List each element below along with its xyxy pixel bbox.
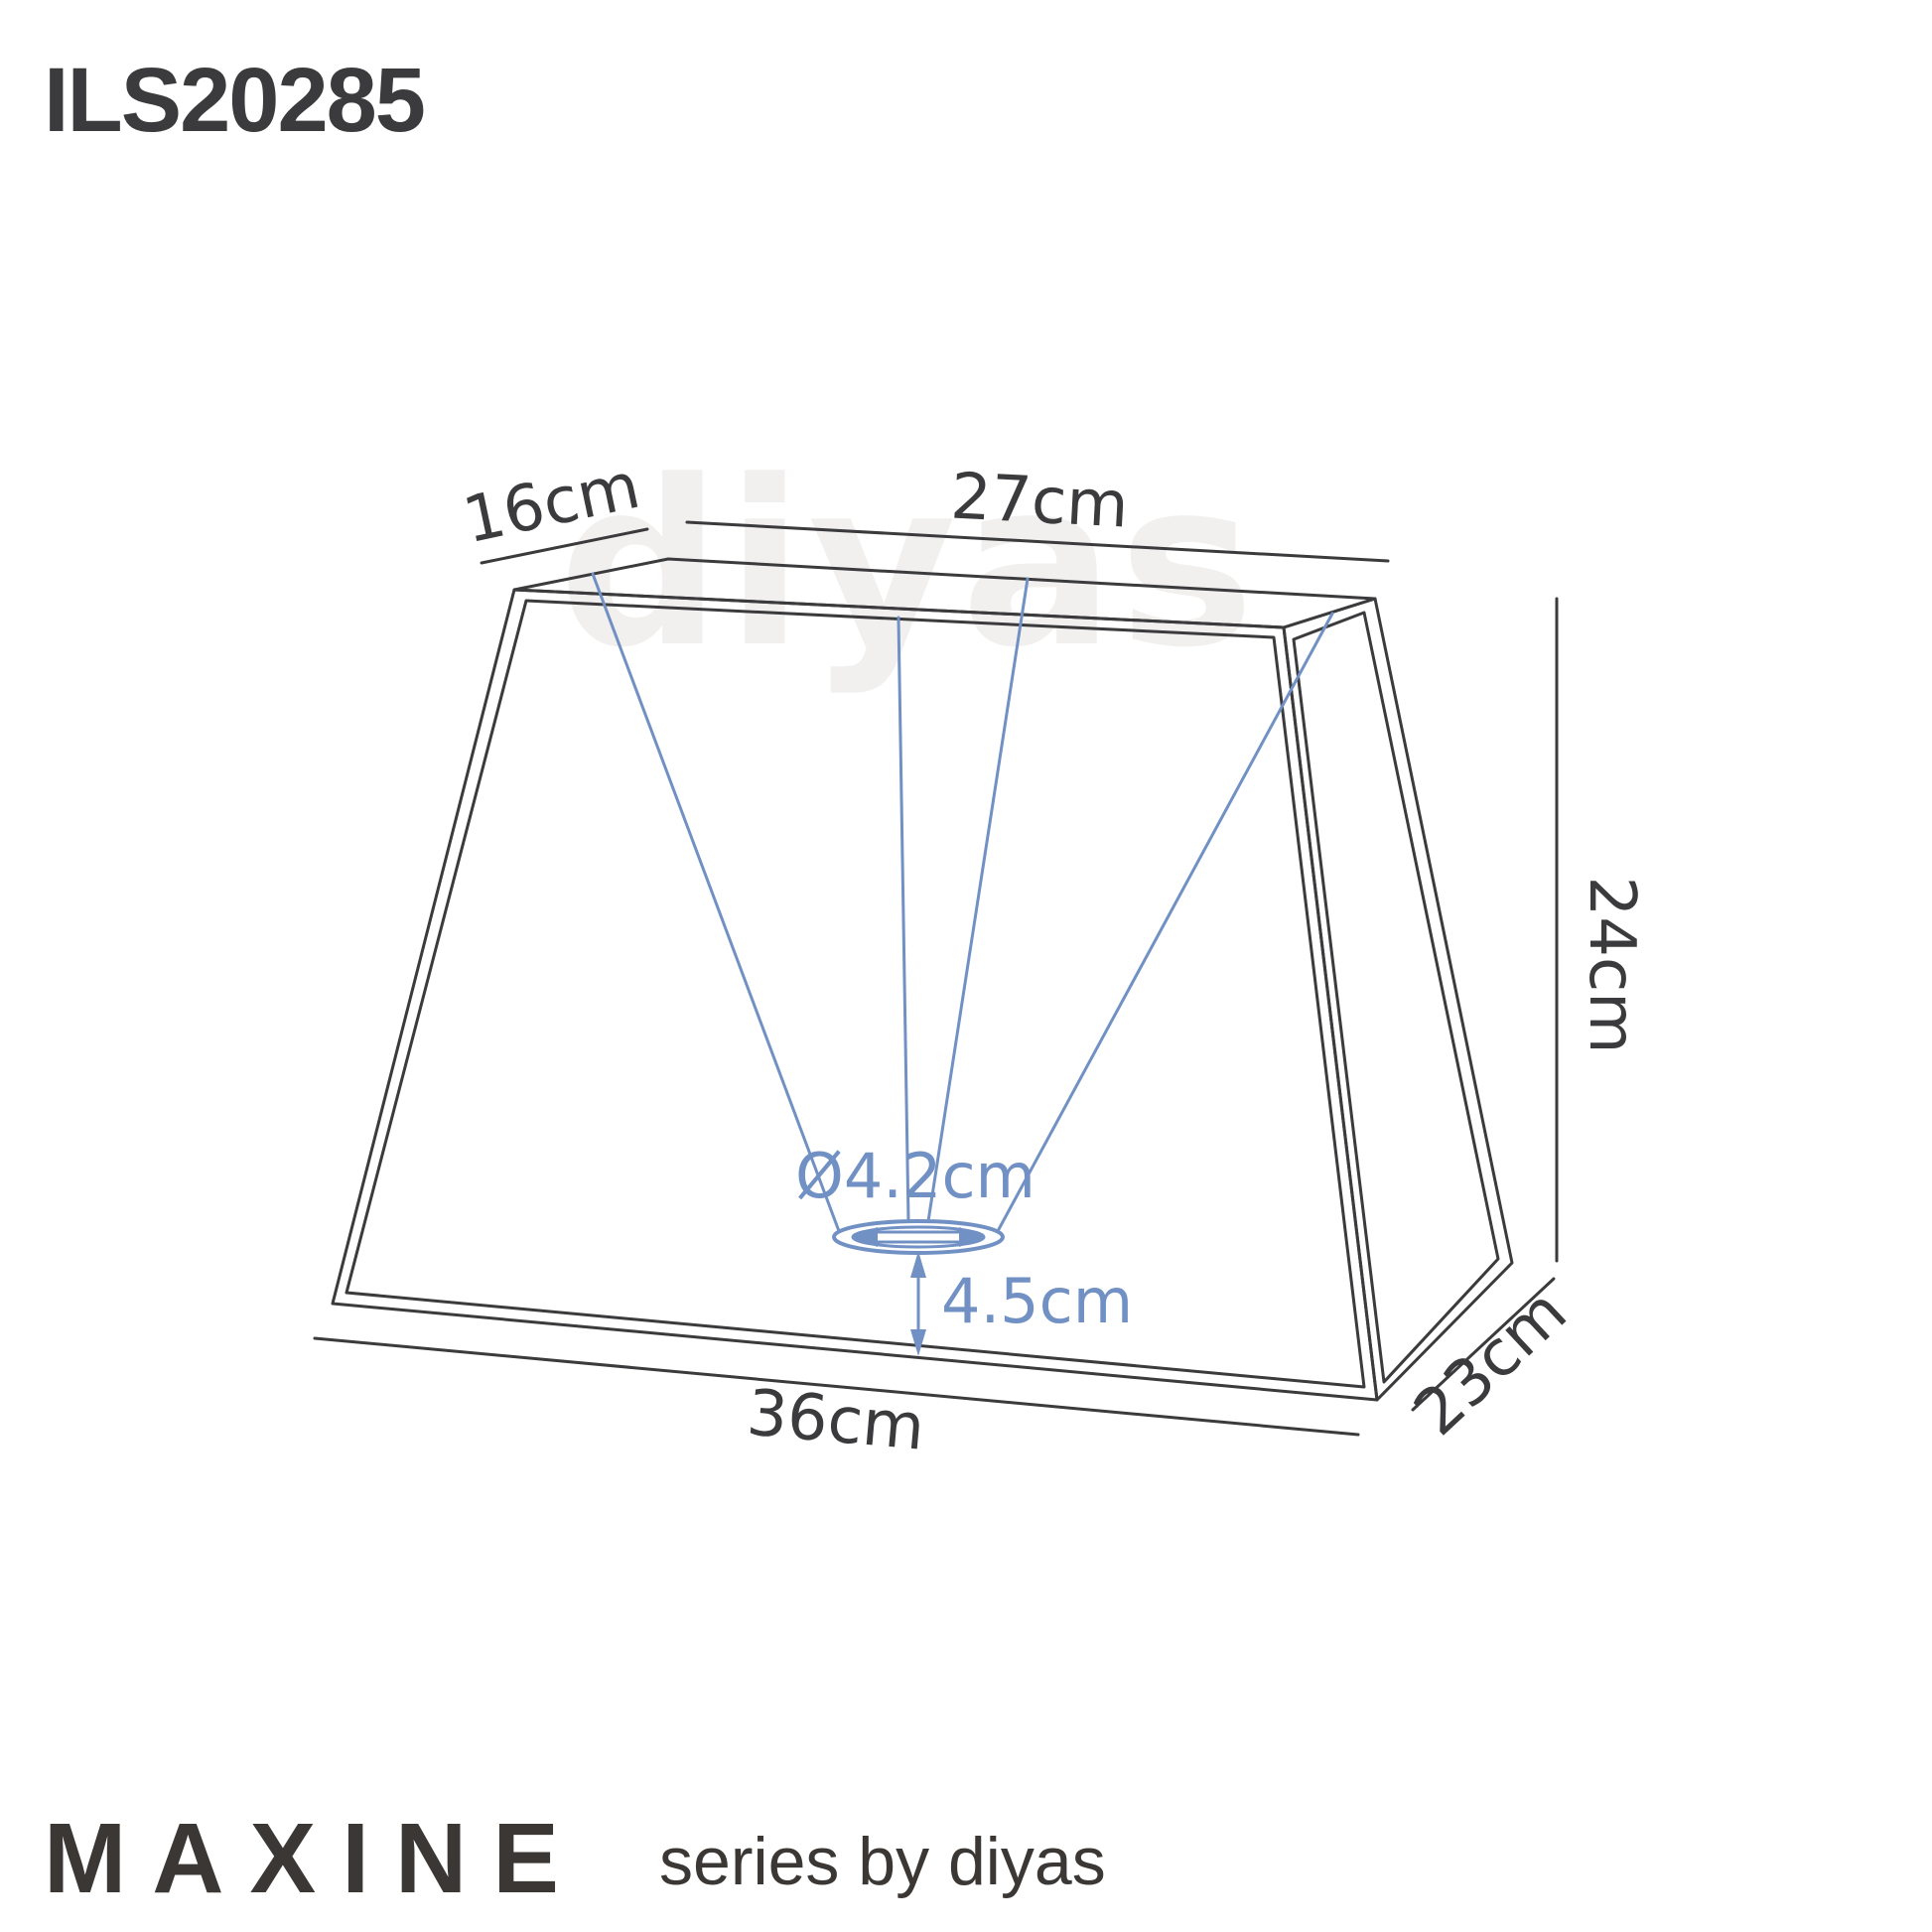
label-fitter-recess: 4.5cm (941, 1265, 1133, 1337)
brand-watermark: diyas (558, 433, 1259, 698)
lampshade-dimension-diagram: diyas ILS20285 (0, 0, 1932, 1932)
label-top-width: 27cm (949, 460, 1131, 542)
product-dimension-sheet: diyas ILS20285 (0, 0, 1932, 1932)
label-height: 24cm (1575, 877, 1648, 1054)
product-code: ILS20285 (44, 50, 424, 151)
label-fitter-diameter: Ø4.2cm (795, 1140, 1035, 1212)
series-byline: series by diyas (659, 1824, 1106, 1899)
fitter-ring (834, 1221, 1003, 1253)
label-bottom-width: 36cm (744, 1376, 927, 1464)
series-name: MAXINE (44, 1803, 585, 1914)
